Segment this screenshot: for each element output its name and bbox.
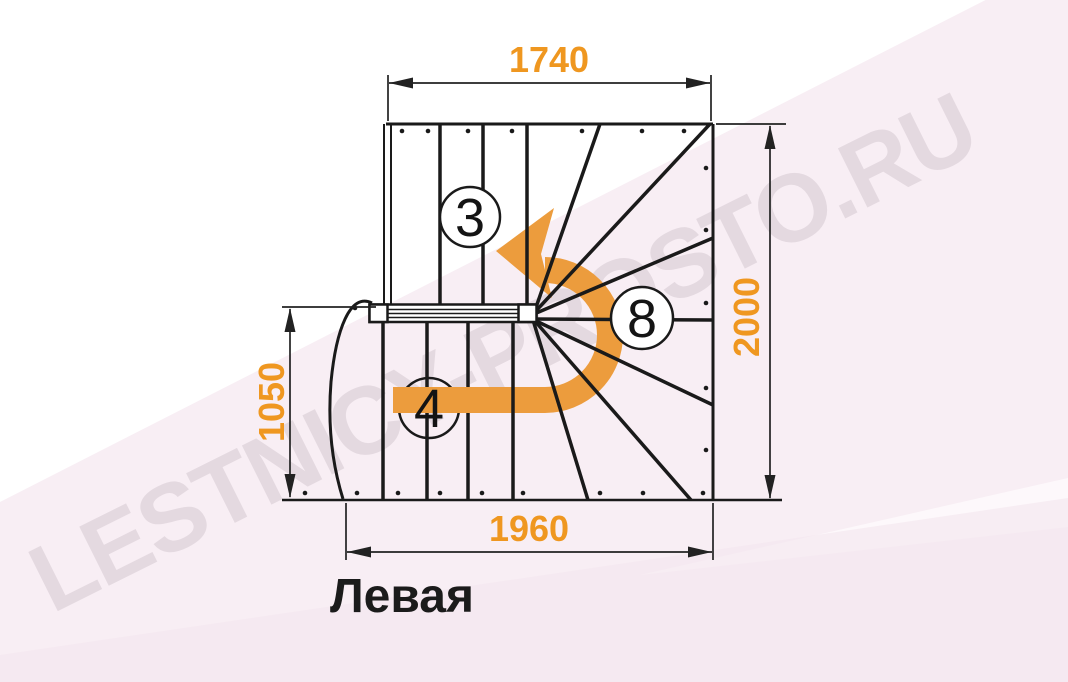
dimension-value-top: 1740 (509, 39, 589, 80)
lower-flight-count: 4 (414, 379, 444, 439)
center-newel-post (519, 305, 537, 323)
stair-plan-drawing: LESTNICY-PROSTO.RU (0, 0, 1068, 682)
upper-flight-count: 3 (455, 188, 485, 248)
winder-count: 8 (627, 289, 657, 349)
dimension-arrowhead (686, 78, 710, 89)
dimension-value-bottom: 1960 (489, 508, 569, 549)
screw-dots-top (400, 129, 687, 134)
landing-step-board (370, 305, 537, 323)
dimension-arrowhead (389, 78, 413, 89)
stair-plan-page: LESTNICY-PROSTO.RU (0, 0, 1068, 682)
dimension-top-1740: 1740 (388, 39, 711, 121)
page-title: Левая (330, 570, 474, 623)
dimension-value-right: 2000 (726, 277, 767, 357)
dimension-arrowhead (285, 308, 296, 332)
dimension-value-left: 1050 (251, 362, 292, 442)
